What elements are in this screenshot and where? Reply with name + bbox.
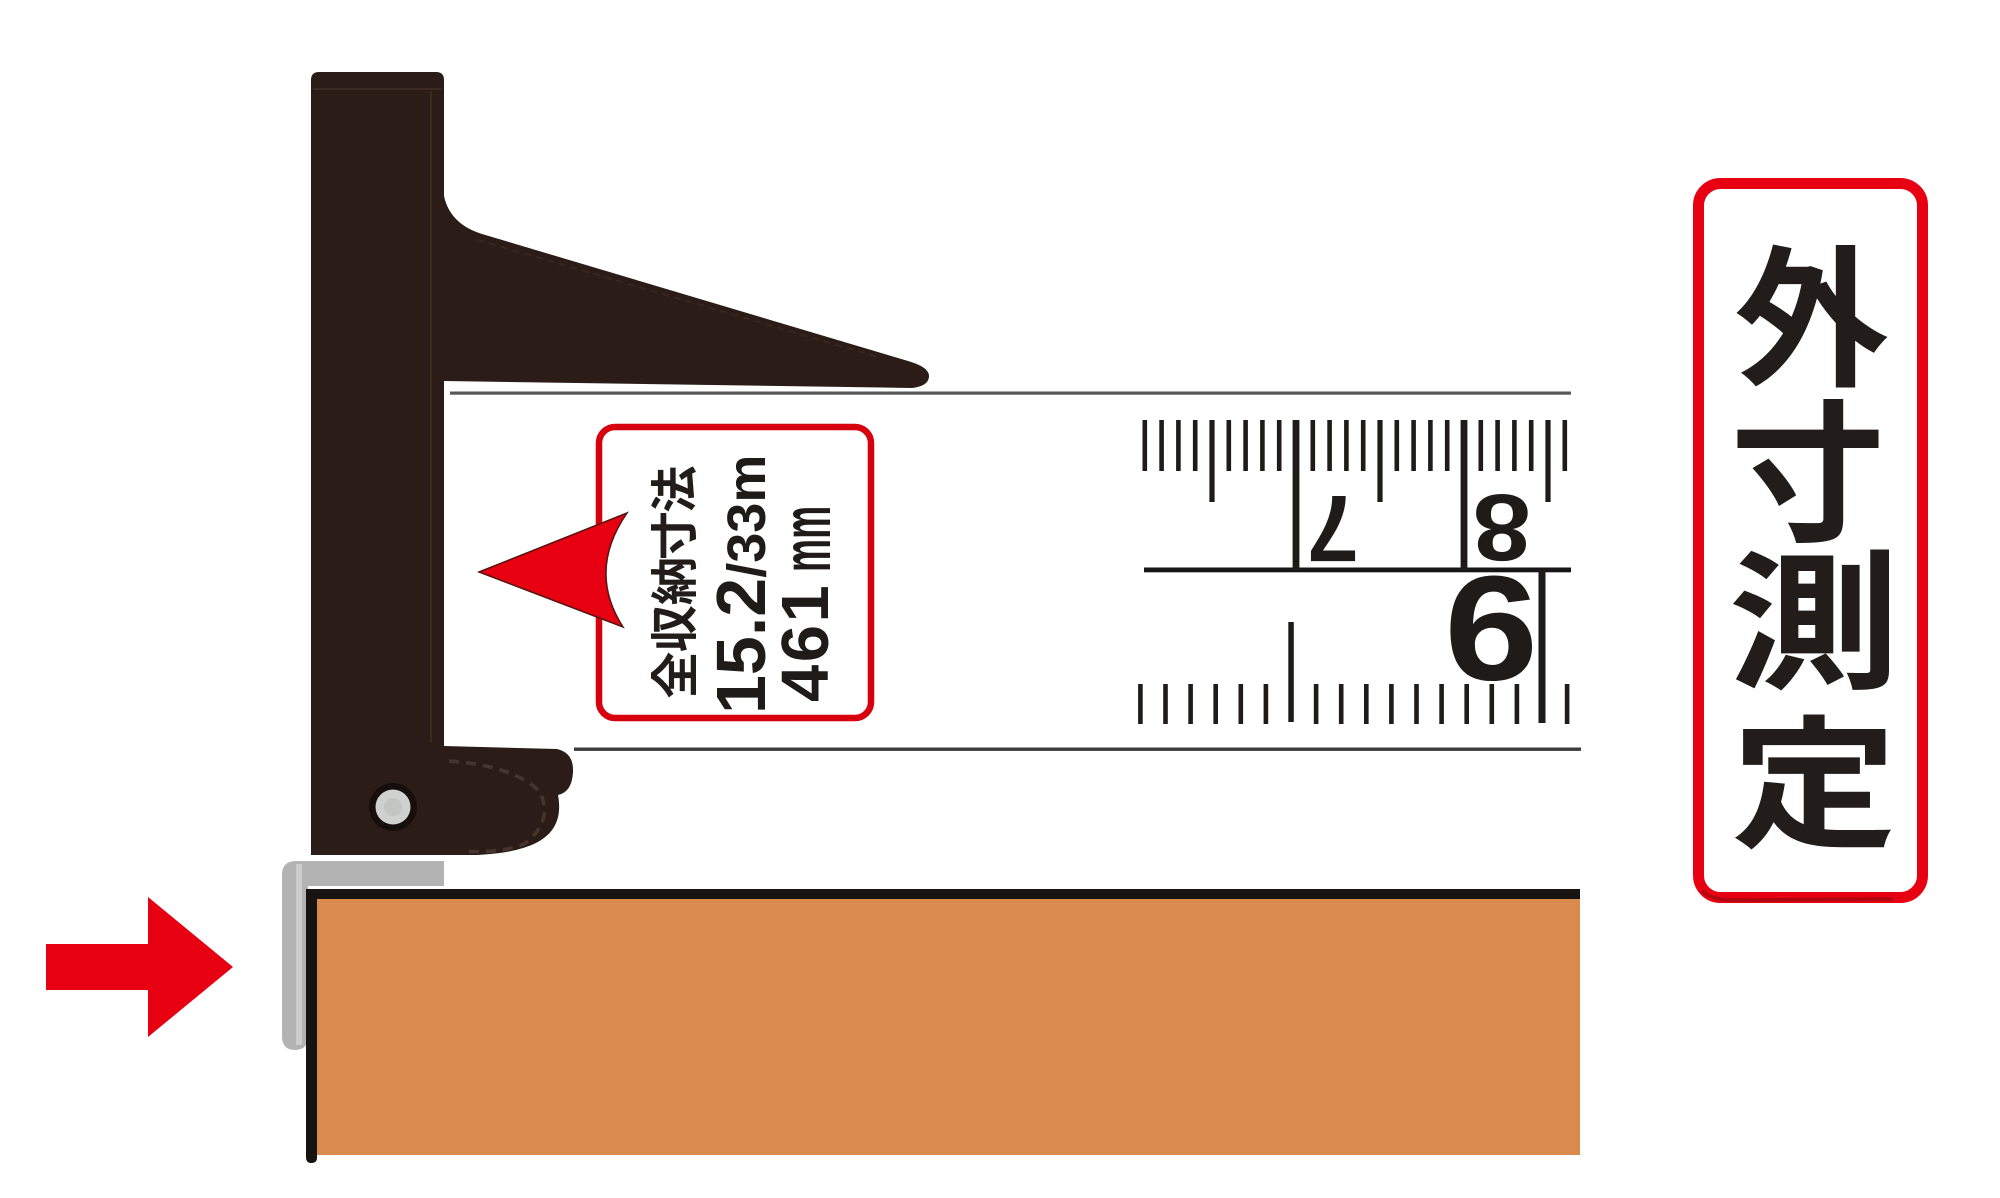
svg-text:mm: mm (768, 506, 845, 572)
svg-text:461: 461 (768, 583, 843, 702)
svg-text:7: 7 (1307, 475, 1359, 582)
svg-text:9: 9 (1444, 545, 1538, 712)
